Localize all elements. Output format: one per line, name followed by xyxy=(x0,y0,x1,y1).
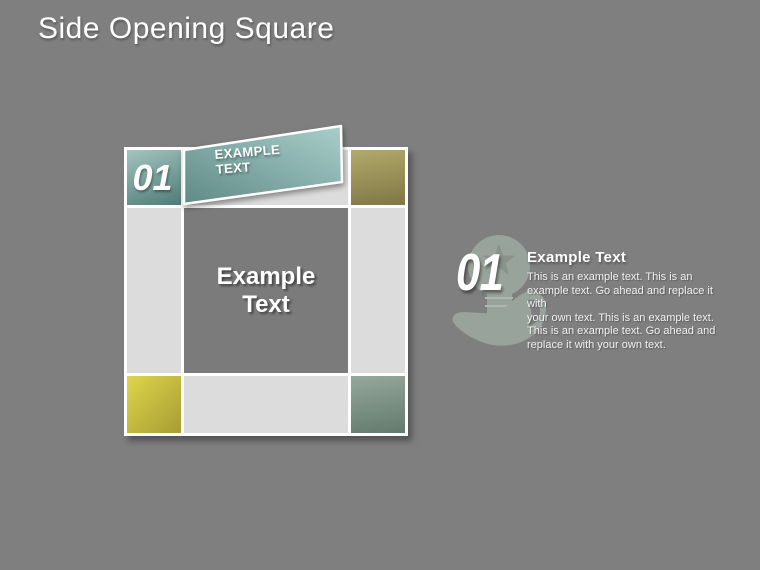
item-body-line: This is an example text. Go ahead and xyxy=(527,325,727,339)
item-body-line: This is an example text. This is an xyxy=(527,271,727,285)
item-body-text: This is an example text. This is an exam… xyxy=(527,271,727,353)
corner-accent-bottom-left xyxy=(127,376,181,433)
corner-number-label: 01 xyxy=(132,157,175,199)
right-edge-strip xyxy=(351,208,405,373)
page-title: Side Opening Square xyxy=(38,12,334,46)
item-body-line: your own text. This is an example text. xyxy=(527,312,727,326)
corner-number-badge: 01 xyxy=(127,150,181,205)
item-number-label: 01 xyxy=(456,247,503,299)
item-body-line: replace it with your own text. xyxy=(527,339,727,353)
center-panel: Example Text xyxy=(184,208,348,373)
corner-accent-bottom-right xyxy=(351,376,405,433)
item-body-line: example text. Go ahead and replace it wi… xyxy=(527,285,727,312)
left-edge-strip xyxy=(127,208,181,373)
bottom-edge-strip xyxy=(184,376,348,433)
corner-accent-top-right xyxy=(351,150,405,205)
item-heading: Example Text xyxy=(527,249,626,266)
center-text-line-2: Text xyxy=(242,291,290,319)
flap-label: EXAMPLE TEXT xyxy=(214,142,282,177)
center-text-line-1: Example xyxy=(217,263,316,291)
